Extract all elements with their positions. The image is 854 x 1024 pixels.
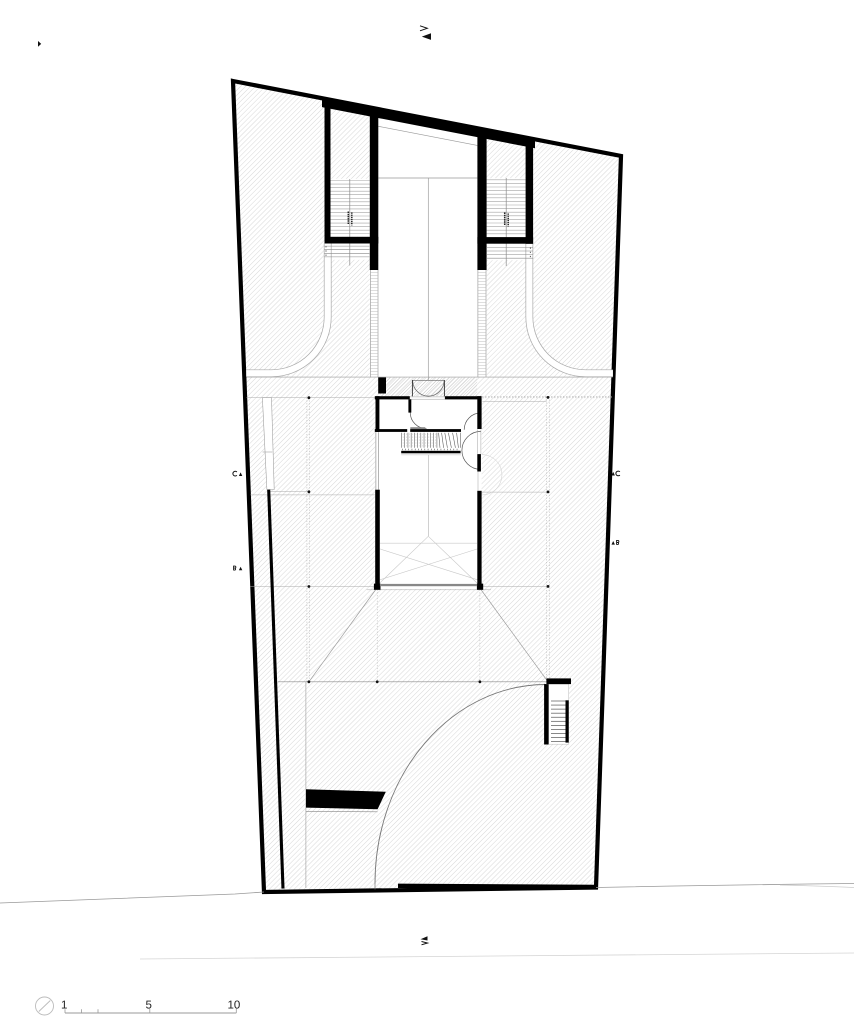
svg-text:5: 5 (146, 1000, 152, 1012)
svg-text:10: 10 (228, 1000, 241, 1012)
svg-text:1: 1 (61, 1000, 67, 1012)
